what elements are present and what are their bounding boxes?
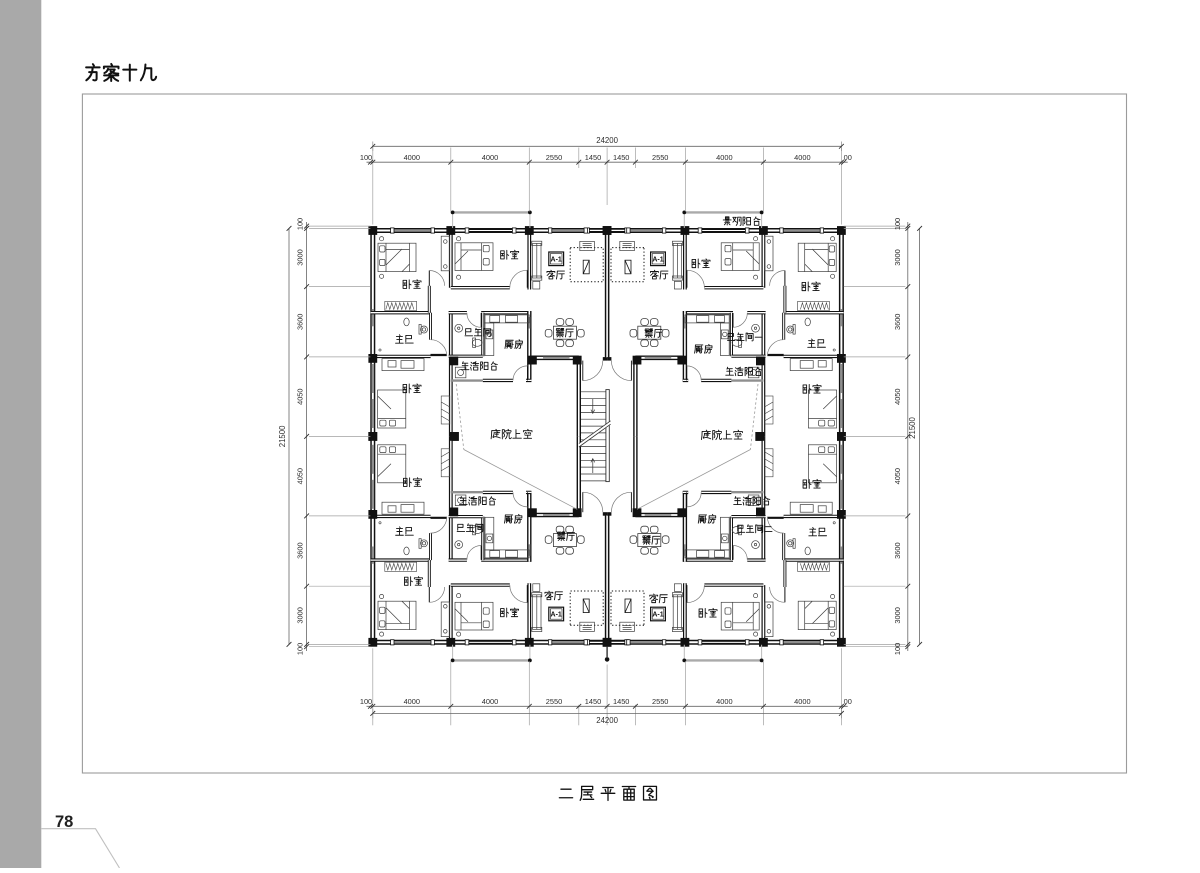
svg-text:00: 00 (844, 697, 852, 706)
svg-text:A-1: A-1 (551, 611, 562, 618)
svg-text:3000: 3000 (893, 607, 902, 623)
svg-text:4050: 4050 (295, 388, 304, 404)
svg-text:4000: 4000 (794, 697, 810, 706)
svg-text:2550: 2550 (652, 153, 668, 162)
svg-text:4000: 4000 (404, 153, 420, 162)
svg-text:100: 100 (360, 153, 372, 162)
svg-text:4000: 4000 (482, 153, 498, 162)
svg-text:4000: 4000 (404, 697, 420, 706)
svg-text:4000: 4000 (716, 153, 732, 162)
svg-text:1450: 1450 (585, 153, 601, 162)
svg-text:4000: 4000 (482, 697, 498, 706)
svg-text:100: 100 (893, 218, 902, 230)
svg-text:100: 100 (295, 218, 304, 230)
svg-text:A-1: A-1 (551, 256, 562, 263)
svg-text:4050: 4050 (893, 468, 902, 484)
svg-text:100: 100 (360, 697, 372, 706)
svg-text:4000: 4000 (716, 697, 732, 706)
svg-text:1450: 1450 (613, 697, 629, 706)
svg-text:100: 100 (295, 643, 304, 655)
svg-text:A-1: A-1 (652, 256, 663, 263)
svg-text:2550: 2550 (546, 153, 562, 162)
svg-text:A-1: A-1 (652, 611, 663, 618)
svg-text:1450: 1450 (585, 697, 601, 706)
svg-text:00: 00 (844, 153, 852, 162)
svg-text:2550: 2550 (546, 697, 562, 706)
svg-text:1450: 1450 (613, 153, 629, 162)
svg-text:3600: 3600 (893, 314, 902, 330)
svg-text:24200: 24200 (596, 136, 618, 145)
svg-text:24200: 24200 (596, 716, 618, 725)
svg-text:2550: 2550 (652, 697, 668, 706)
svg-text:21500: 21500 (908, 416, 917, 438)
svg-text:100: 100 (893, 643, 902, 655)
svg-text:3000: 3000 (893, 249, 902, 265)
svg-text:3600: 3600 (893, 542, 902, 558)
svg-text:3600: 3600 (295, 542, 304, 558)
svg-text:3000: 3000 (295, 607, 304, 623)
svg-text:21500: 21500 (278, 425, 287, 447)
svg-text:78: 78 (55, 813, 73, 831)
svg-text:3000: 3000 (295, 249, 304, 265)
svg-text:3600: 3600 (295, 314, 304, 330)
svg-text:4000: 4000 (794, 153, 810, 162)
svg-text:4050: 4050 (893, 388, 902, 404)
svg-text:4050: 4050 (295, 468, 304, 484)
